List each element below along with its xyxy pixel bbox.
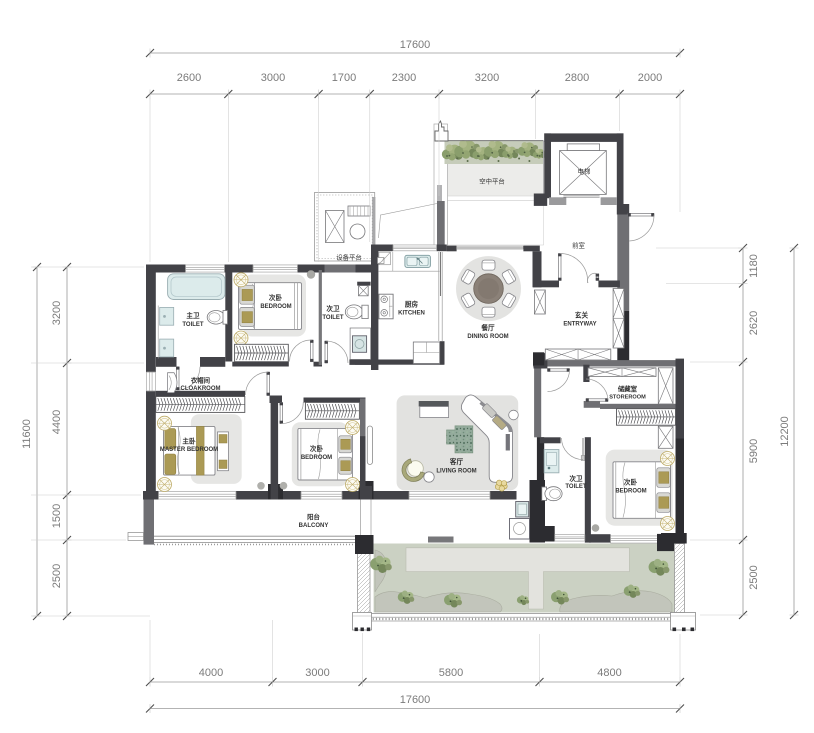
svg-text:主卧: 主卧 — [182, 437, 196, 446]
svg-text:次卫: 次卫 — [569, 474, 583, 483]
svg-text:2300: 2300 — [392, 72, 416, 84]
svg-text:次卧: 次卧 — [269, 293, 283, 302]
svg-text:TOILET: TOILET — [565, 484, 587, 490]
svg-text:KITCHEN: KITCHEN — [398, 311, 425, 317]
svg-text:2800: 2800 — [565, 72, 589, 84]
svg-text:MASTER BEDROOM: MASTER BEDROOM — [160, 447, 218, 453]
svg-text:1500: 1500 — [51, 504, 63, 528]
svg-text:BALCONY: BALCONY — [299, 523, 329, 529]
svg-text:ENTRYWAY: ENTRYWAY — [563, 322, 596, 328]
svg-text:1180: 1180 — [748, 254, 760, 278]
svg-text:次卧: 次卧 — [624, 478, 638, 487]
svg-text:11600: 11600 — [21, 419, 33, 449]
svg-text:电梯: 电梯 — [578, 167, 591, 176]
svg-text:阳台: 阳台 — [307, 512, 320, 521]
svg-text:次卫: 次卫 — [326, 304, 340, 313]
svg-text:2620: 2620 — [748, 311, 760, 335]
svg-text:3200: 3200 — [51, 301, 63, 325]
svg-text:前室: 前室 — [572, 241, 585, 250]
svg-text:17600: 17600 — [400, 39, 431, 51]
svg-text:储藏室: 储藏室 — [618, 384, 638, 393]
svg-text:次卧: 次卧 — [310, 444, 324, 453]
svg-text:餐厅: 餐厅 — [481, 323, 495, 332]
svg-text:5800: 5800 — [439, 667, 463, 679]
svg-text:STOREROOM: STOREROOM — [609, 395, 646, 401]
svg-text:衣帽间: 衣帽间 — [191, 376, 210, 385]
svg-text:玄关: 玄关 — [575, 311, 589, 320]
svg-text:BEDROOM: BEDROOM — [301, 455, 332, 461]
svg-text:17600: 17600 — [400, 694, 431, 706]
svg-text:2500: 2500 — [51, 564, 63, 588]
svg-text:4400: 4400 — [51, 410, 63, 434]
svg-text:3000: 3000 — [305, 667, 329, 679]
svg-text:厨房: 厨房 — [405, 300, 419, 309]
svg-text:4800: 4800 — [597, 667, 621, 679]
svg-text:BEDROOM: BEDROOM — [260, 304, 291, 310]
svg-text:TOILET: TOILET — [182, 322, 204, 328]
svg-text:3200: 3200 — [475, 72, 499, 84]
svg-text:2500: 2500 — [748, 565, 760, 589]
svg-text:4000: 4000 — [199, 667, 223, 679]
svg-text:12200: 12200 — [779, 416, 791, 447]
svg-text:BEDROOM: BEDROOM — [615, 489, 646, 495]
svg-text:主卫: 主卫 — [186, 311, 200, 320]
svg-text:2000: 2000 — [638, 72, 662, 84]
svg-text:LIVING ROOM: LIVING ROOM — [436, 469, 476, 475]
svg-text:设备平台: 设备平台 — [336, 253, 362, 262]
svg-text:CLOAKROOM: CLOAKROOM — [181, 386, 221, 392]
svg-text:空中平台: 空中平台 — [479, 177, 505, 186]
svg-text:1700: 1700 — [332, 72, 356, 84]
svg-text:2600: 2600 — [177, 72, 201, 84]
svg-text:3000: 3000 — [261, 72, 285, 84]
svg-text:DINING ROOM: DINING ROOM — [467, 334, 508, 340]
svg-text:TOILET: TOILET — [322, 315, 344, 321]
svg-text:5900: 5900 — [748, 439, 760, 463]
svg-text:客厅: 客厅 — [449, 457, 464, 466]
